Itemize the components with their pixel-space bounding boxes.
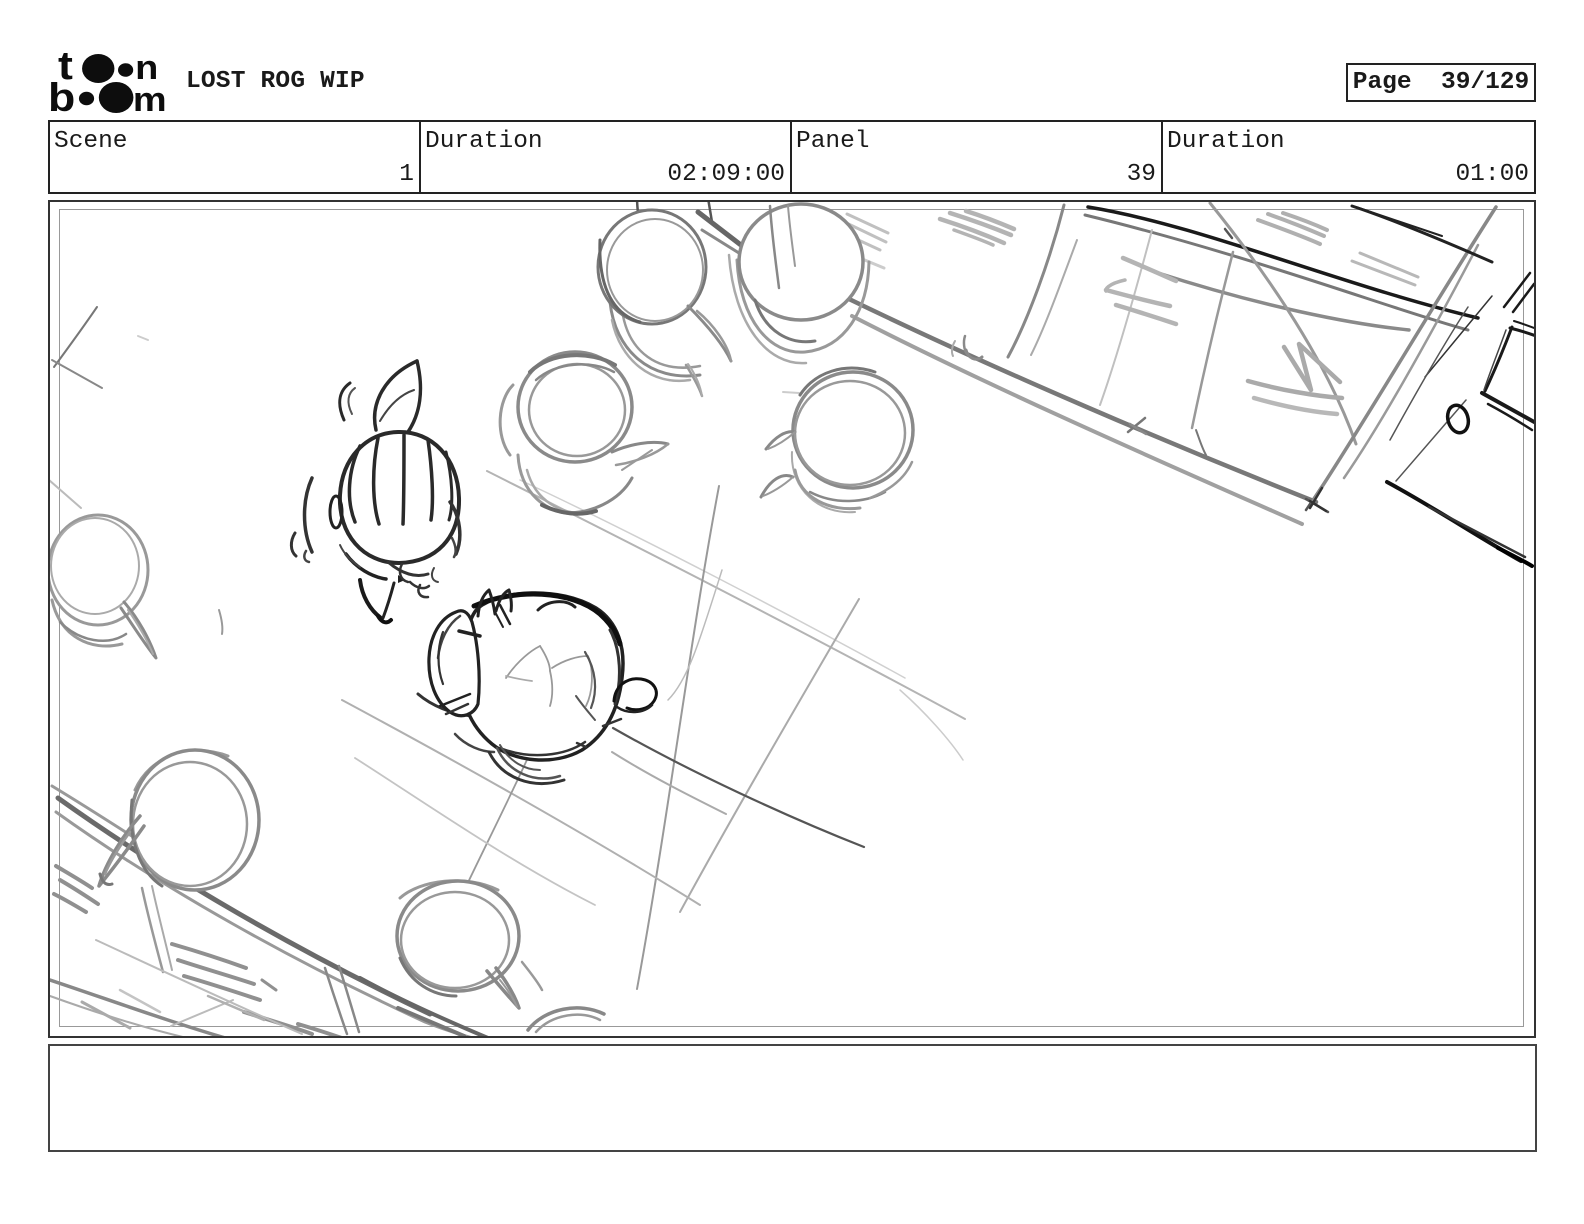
svg-text:b: b	[48, 75, 75, 114]
svg-text:m: m	[133, 80, 167, 114]
